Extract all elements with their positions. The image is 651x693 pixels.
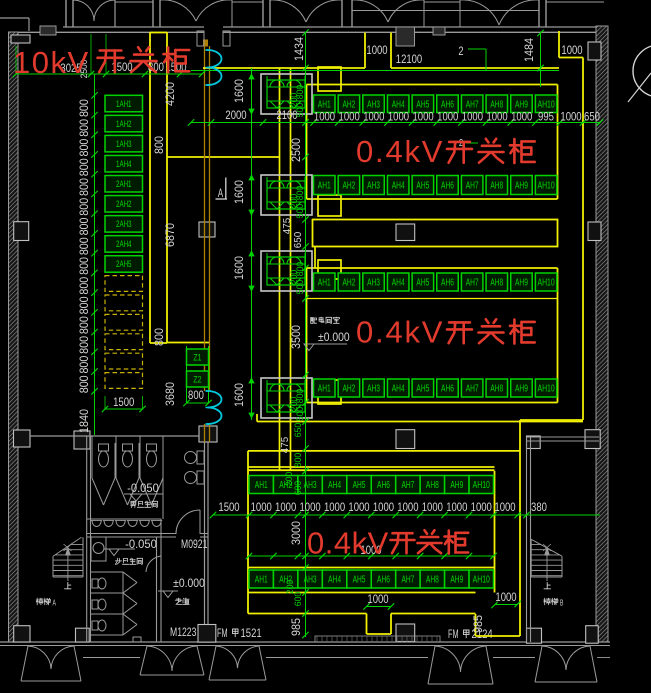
svg-text:800: 800 <box>295 389 305 404</box>
svg-text:2500: 2500 <box>291 138 303 162</box>
svg-text:0.4kV: 0.4kV <box>356 134 444 169</box>
svg-text:6870: 6870 <box>165 223 177 247</box>
svg-text:1600: 1600 <box>234 79 246 103</box>
svg-text:500: 500 <box>295 103 305 118</box>
svg-text:985: 985 <box>473 615 485 633</box>
svg-text:AH1: AH1 <box>255 480 268 491</box>
svg-text:AH1: AH1 <box>318 181 331 192</box>
svg-text:AH9: AH9 <box>450 575 463 586</box>
svg-text:±0.000: ±0.000 <box>173 576 205 590</box>
svg-text:AH10: AH10 <box>538 384 556 395</box>
svg-text:500: 500 <box>295 280 305 295</box>
svg-text:500: 500 <box>295 407 305 422</box>
svg-text:AH4: AH4 <box>392 384 405 395</box>
svg-text:650: 650 <box>584 110 600 124</box>
svg-text:1000: 1000 <box>339 110 360 124</box>
svg-text:800: 800 <box>79 336 91 354</box>
svg-text:AH10: AH10 <box>538 278 556 289</box>
svg-text:AH8: AH8 <box>490 181 503 192</box>
svg-text:2000: 2000 <box>225 108 246 122</box>
svg-text:800: 800 <box>79 375 91 393</box>
svg-text:1000: 1000 <box>462 110 483 124</box>
svg-text:800: 800 <box>79 158 91 176</box>
svg-text:1600: 1600 <box>234 383 246 407</box>
svg-text:0.4kV: 0.4kV <box>356 315 444 350</box>
svg-text:AH7: AH7 <box>401 480 414 491</box>
svg-text:10kV: 10kV <box>13 45 90 80</box>
svg-text:AH9: AH9 <box>515 181 528 192</box>
svg-text:AH1: AH1 <box>318 278 331 289</box>
svg-text:1000: 1000 <box>251 500 272 514</box>
svg-text:1000: 1000 <box>397 500 418 514</box>
svg-text:800: 800 <box>154 136 166 154</box>
svg-text:1600: 1600 <box>234 256 246 280</box>
svg-text:3500: 3500 <box>291 325 303 349</box>
svg-text:2: 2 <box>458 44 463 58</box>
svg-text:800: 800 <box>79 198 91 216</box>
svg-text:1000: 1000 <box>388 110 409 124</box>
svg-text:1AH1: 1AH1 <box>116 99 132 109</box>
svg-text:600: 600 <box>293 592 303 607</box>
svg-text:1521: 1521 <box>241 626 262 640</box>
svg-text:800: 800 <box>154 328 166 346</box>
svg-text:800: 800 <box>79 316 91 334</box>
svg-text:AH6: AH6 <box>377 480 390 491</box>
svg-text:2AH2: 2AH2 <box>116 199 132 209</box>
svg-text:AH1: AH1 <box>318 384 331 395</box>
svg-text:AH8: AH8 <box>490 384 503 395</box>
svg-text:AH1: AH1 <box>255 575 268 586</box>
svg-text:1000: 1000 <box>437 110 458 124</box>
svg-text:AH5: AH5 <box>416 384 429 395</box>
svg-text:A: A <box>218 186 223 200</box>
svg-text:1000: 1000 <box>324 500 345 514</box>
svg-text:1000: 1000 <box>422 500 443 514</box>
svg-text:A: A <box>53 599 57 608</box>
svg-text:±0.000: ±0.000 <box>318 330 350 344</box>
svg-text:AH4: AH4 <box>392 278 405 289</box>
svg-text:1434: 1434 <box>294 36 306 60</box>
svg-text:AH5: AH5 <box>416 181 429 192</box>
svg-text:1AH2: 1AH2 <box>116 119 132 129</box>
svg-text:800: 800 <box>79 139 91 157</box>
svg-text:800: 800 <box>79 218 91 236</box>
svg-text:475: 475 <box>281 218 293 235</box>
svg-text:AH10: AH10 <box>473 480 491 491</box>
svg-text:AH9: AH9 <box>450 480 463 491</box>
svg-text:M0921: M0921 <box>181 537 208 551</box>
svg-text:FM: FM <box>448 627 459 641</box>
svg-text:AH2: AH2 <box>342 278 355 289</box>
svg-text:1000: 1000 <box>446 500 467 514</box>
svg-text:800: 800 <box>79 119 91 137</box>
svg-text:AH3: AH3 <box>367 181 380 192</box>
svg-text:1000: 1000 <box>373 500 394 514</box>
svg-text:4200: 4200 <box>165 82 177 106</box>
svg-text:1500: 1500 <box>218 500 239 514</box>
svg-text:1000: 1000 <box>486 110 507 124</box>
svg-text:380: 380 <box>531 500 547 514</box>
svg-text:1000: 1000 <box>314 110 335 124</box>
svg-text:Z2: Z2 <box>193 374 201 385</box>
svg-text:800: 800 <box>79 257 91 275</box>
svg-text:1000: 1000 <box>561 43 582 57</box>
svg-text:800: 800 <box>295 262 305 277</box>
svg-text:2AH3: 2AH3 <box>116 219 132 229</box>
svg-text:AH9: AH9 <box>515 384 528 395</box>
svg-text:1AH3: 1AH3 <box>116 139 132 149</box>
svg-text:AH3: AH3 <box>367 384 380 395</box>
svg-text:650: 650 <box>292 232 304 249</box>
svg-text:985: 985 <box>291 618 303 636</box>
svg-text:AH8: AH8 <box>426 575 439 586</box>
svg-text:AH2: AH2 <box>342 384 355 395</box>
svg-text:3680: 3680 <box>165 382 177 406</box>
svg-text:1000: 1000 <box>363 110 384 124</box>
svg-text:AH7: AH7 <box>401 575 414 586</box>
svg-text:-0.050: -0.050 <box>127 481 159 495</box>
svg-text:1484: 1484 <box>524 37 536 61</box>
svg-text:800: 800 <box>295 85 305 100</box>
svg-text:AH8: AH8 <box>426 480 439 491</box>
svg-text:1000: 1000 <box>495 590 516 604</box>
svg-text:AH3: AH3 <box>367 278 380 289</box>
svg-text:AH5: AH5 <box>353 480 366 491</box>
svg-text:AH6: AH6 <box>377 575 390 586</box>
svg-text:AH7: AH7 <box>466 278 479 289</box>
svg-text:AH6: AH6 <box>441 384 454 395</box>
svg-text:1840: 1840 <box>79 409 91 433</box>
svg-text:3000: 3000 <box>291 521 303 545</box>
svg-text:AH9: AH9 <box>515 278 528 289</box>
svg-text:600: 600 <box>293 481 303 496</box>
svg-text:800: 800 <box>79 178 91 196</box>
svg-text:AH4: AH4 <box>392 181 405 192</box>
svg-text:2AH5: 2AH5 <box>116 259 132 269</box>
svg-text:AH7: AH7 <box>466 181 479 192</box>
svg-text:800: 800 <box>295 186 305 201</box>
svg-text:800: 800 <box>79 237 91 255</box>
svg-text:AH5: AH5 <box>416 278 429 289</box>
svg-text:800: 800 <box>79 296 91 314</box>
svg-text:1500: 1500 <box>113 395 134 409</box>
svg-text:1000: 1000 <box>471 500 492 514</box>
svg-text:800: 800 <box>79 99 91 117</box>
svg-text:1000: 1000 <box>560 110 581 124</box>
svg-text:AH6: AH6 <box>441 181 454 192</box>
svg-text:500: 500 <box>295 204 305 219</box>
svg-text:12100: 12100 <box>396 52 423 66</box>
svg-text:2AH4: 2AH4 <box>116 239 132 249</box>
svg-text:2AH1: 2AH1 <box>116 179 132 189</box>
svg-text:AH10: AH10 <box>538 181 556 192</box>
svg-text:1AH4: 1AH4 <box>116 159 132 169</box>
svg-text:AH10: AH10 <box>473 575 491 586</box>
svg-text:AH5: AH5 <box>353 575 366 586</box>
svg-text:AH6: AH6 <box>441 278 454 289</box>
svg-text:AH4: AH4 <box>328 480 341 491</box>
svg-text:Z1: Z1 <box>193 352 201 363</box>
svg-text:475: 475 <box>279 437 291 454</box>
svg-text:1000: 1000 <box>413 110 434 124</box>
svg-text:M1223: M1223 <box>170 625 197 639</box>
svg-text:800: 800 <box>188 388 204 402</box>
svg-text:650: 650 <box>293 423 303 438</box>
svg-text:AH2: AH2 <box>342 181 355 192</box>
svg-text:1000: 1000 <box>300 500 321 514</box>
svg-text:800: 800 <box>293 453 303 468</box>
svg-text:AH4: AH4 <box>328 575 341 586</box>
svg-text:1000: 1000 <box>275 500 296 514</box>
svg-text:FM: FM <box>217 626 228 640</box>
svg-text:800: 800 <box>79 277 91 295</box>
svg-text:1000: 1000 <box>366 43 387 57</box>
svg-text:1000: 1000 <box>511 110 532 124</box>
svg-text:B: B <box>560 599 563 608</box>
svg-text:1000: 1000 <box>348 500 369 514</box>
svg-text:1600: 1600 <box>234 180 246 204</box>
svg-text:800: 800 <box>79 356 91 374</box>
svg-text:AH8: AH8 <box>490 278 503 289</box>
svg-text:1000: 1000 <box>367 592 388 606</box>
svg-text:1000: 1000 <box>494 500 515 514</box>
svg-text:0.4kV: 0.4kV <box>307 526 389 561</box>
svg-text:AH7: AH7 <box>466 384 479 395</box>
svg-text:995: 995 <box>538 110 554 124</box>
